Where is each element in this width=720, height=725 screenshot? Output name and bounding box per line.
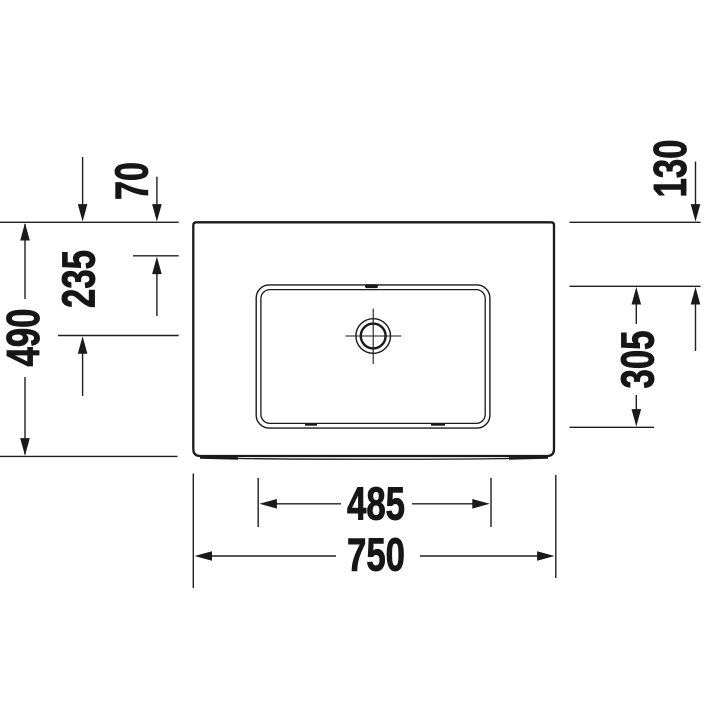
svg-text:70: 70	[105, 162, 157, 200]
svg-text:305: 305	[612, 331, 664, 389]
svg-text:750: 750	[347, 529, 405, 581]
svg-text:130: 130	[644, 140, 696, 198]
svg-text:235: 235	[52, 250, 104, 308]
svg-text:490: 490	[0, 309, 49, 367]
svg-text:485: 485	[347, 478, 405, 530]
